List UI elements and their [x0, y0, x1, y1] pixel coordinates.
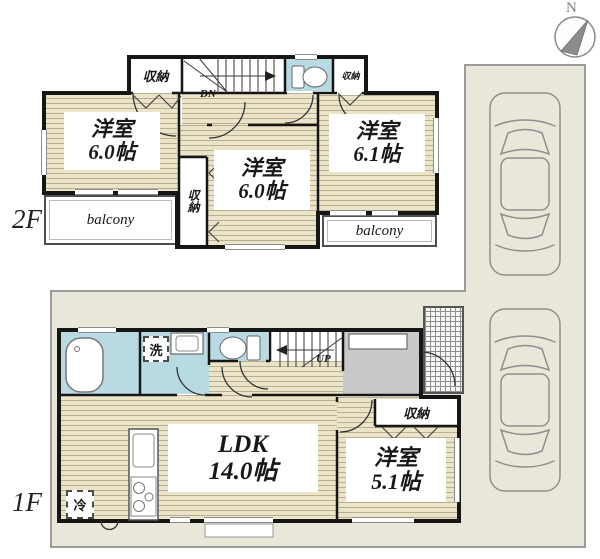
laundry-label: 洗: [149, 340, 162, 359]
f1-stairs-up-label: UP: [316, 353, 331, 365]
window: [170, 517, 190, 523]
f1-ldk-label: LDK 14.0帖: [168, 424, 318, 492]
car-1: [490, 93, 560, 275]
f2-room-east-label: 洋室 6.1帖: [329, 114, 425, 172]
window: [295, 54, 317, 60]
f2-closet-top-left-label: 収納: [129, 59, 182, 91]
window: [372, 210, 398, 216]
window: [207, 327, 229, 333]
f1-room-south-label: 洋室 5.1帖: [346, 438, 446, 502]
f1-toilet-floor: [210, 332, 268, 361]
room-size: 6.1帖: [353, 143, 400, 166]
f2-room-west-label: 洋室 6.0帖: [64, 112, 160, 170]
f1-hall-floor: [209, 361, 343, 395]
f2-balcony-west: balcony: [44, 195, 177, 245]
window: [78, 327, 116, 333]
floor-plan: balcony balcony: [0, 0, 600, 559]
window: [352, 517, 414, 523]
window: [118, 189, 158, 195]
window: [330, 210, 366, 216]
window: [454, 438, 460, 502]
f1-closet-label: 収納: [375, 399, 457, 426]
window: [204, 517, 273, 523]
room-name: 洋室: [241, 157, 283, 180]
compass-icon: [555, 17, 595, 57]
fridge-label: 冷: [73, 495, 86, 514]
f2-closet-middle-label: 収納: [181, 160, 206, 242]
f1-entrance-porch: [423, 306, 464, 394]
window: [433, 118, 439, 173]
balcony-east-label: balcony: [356, 223, 403, 240]
window: [75, 189, 113, 195]
f2-room-center-label: 洋室 6.0帖: [214, 150, 310, 210]
f2-stairs-dn-label: DN: [200, 88, 216, 100]
fridge-marker: 冷: [66, 490, 94, 519]
car-2: [490, 309, 560, 491]
room-size: 5.1帖: [371, 470, 421, 494]
window: [225, 244, 285, 250]
floor-2-tag: 2F: [12, 204, 42, 235]
window: [41, 130, 47, 175]
laundry-marker: 洗: [143, 336, 169, 362]
room-name: 洋室: [91, 118, 133, 141]
f2-toilet-floor: [285, 57, 333, 91]
f1-bathroom-floor: [59, 332, 140, 394]
terrace-step: [205, 524, 273, 537]
f1-entrance-genkan: [343, 332, 421, 395]
balcony-west-label: balcony: [87, 212, 134, 229]
room-size: 14.0帖: [209, 458, 278, 485]
f2-balcony-east: balcony: [322, 215, 437, 247]
room-size: 6.0帖: [88, 141, 135, 164]
f2-closet-top-right-label: 収納: [335, 60, 366, 90]
room-name: LDK: [218, 431, 268, 458]
room-name: 洋室: [374, 446, 418, 470]
room-name: 洋室: [356, 120, 398, 143]
compass-north-label: N: [566, 0, 577, 17]
room-size: 6.0帖: [238, 180, 285, 203]
floor-1-tag: 1F: [12, 487, 42, 518]
